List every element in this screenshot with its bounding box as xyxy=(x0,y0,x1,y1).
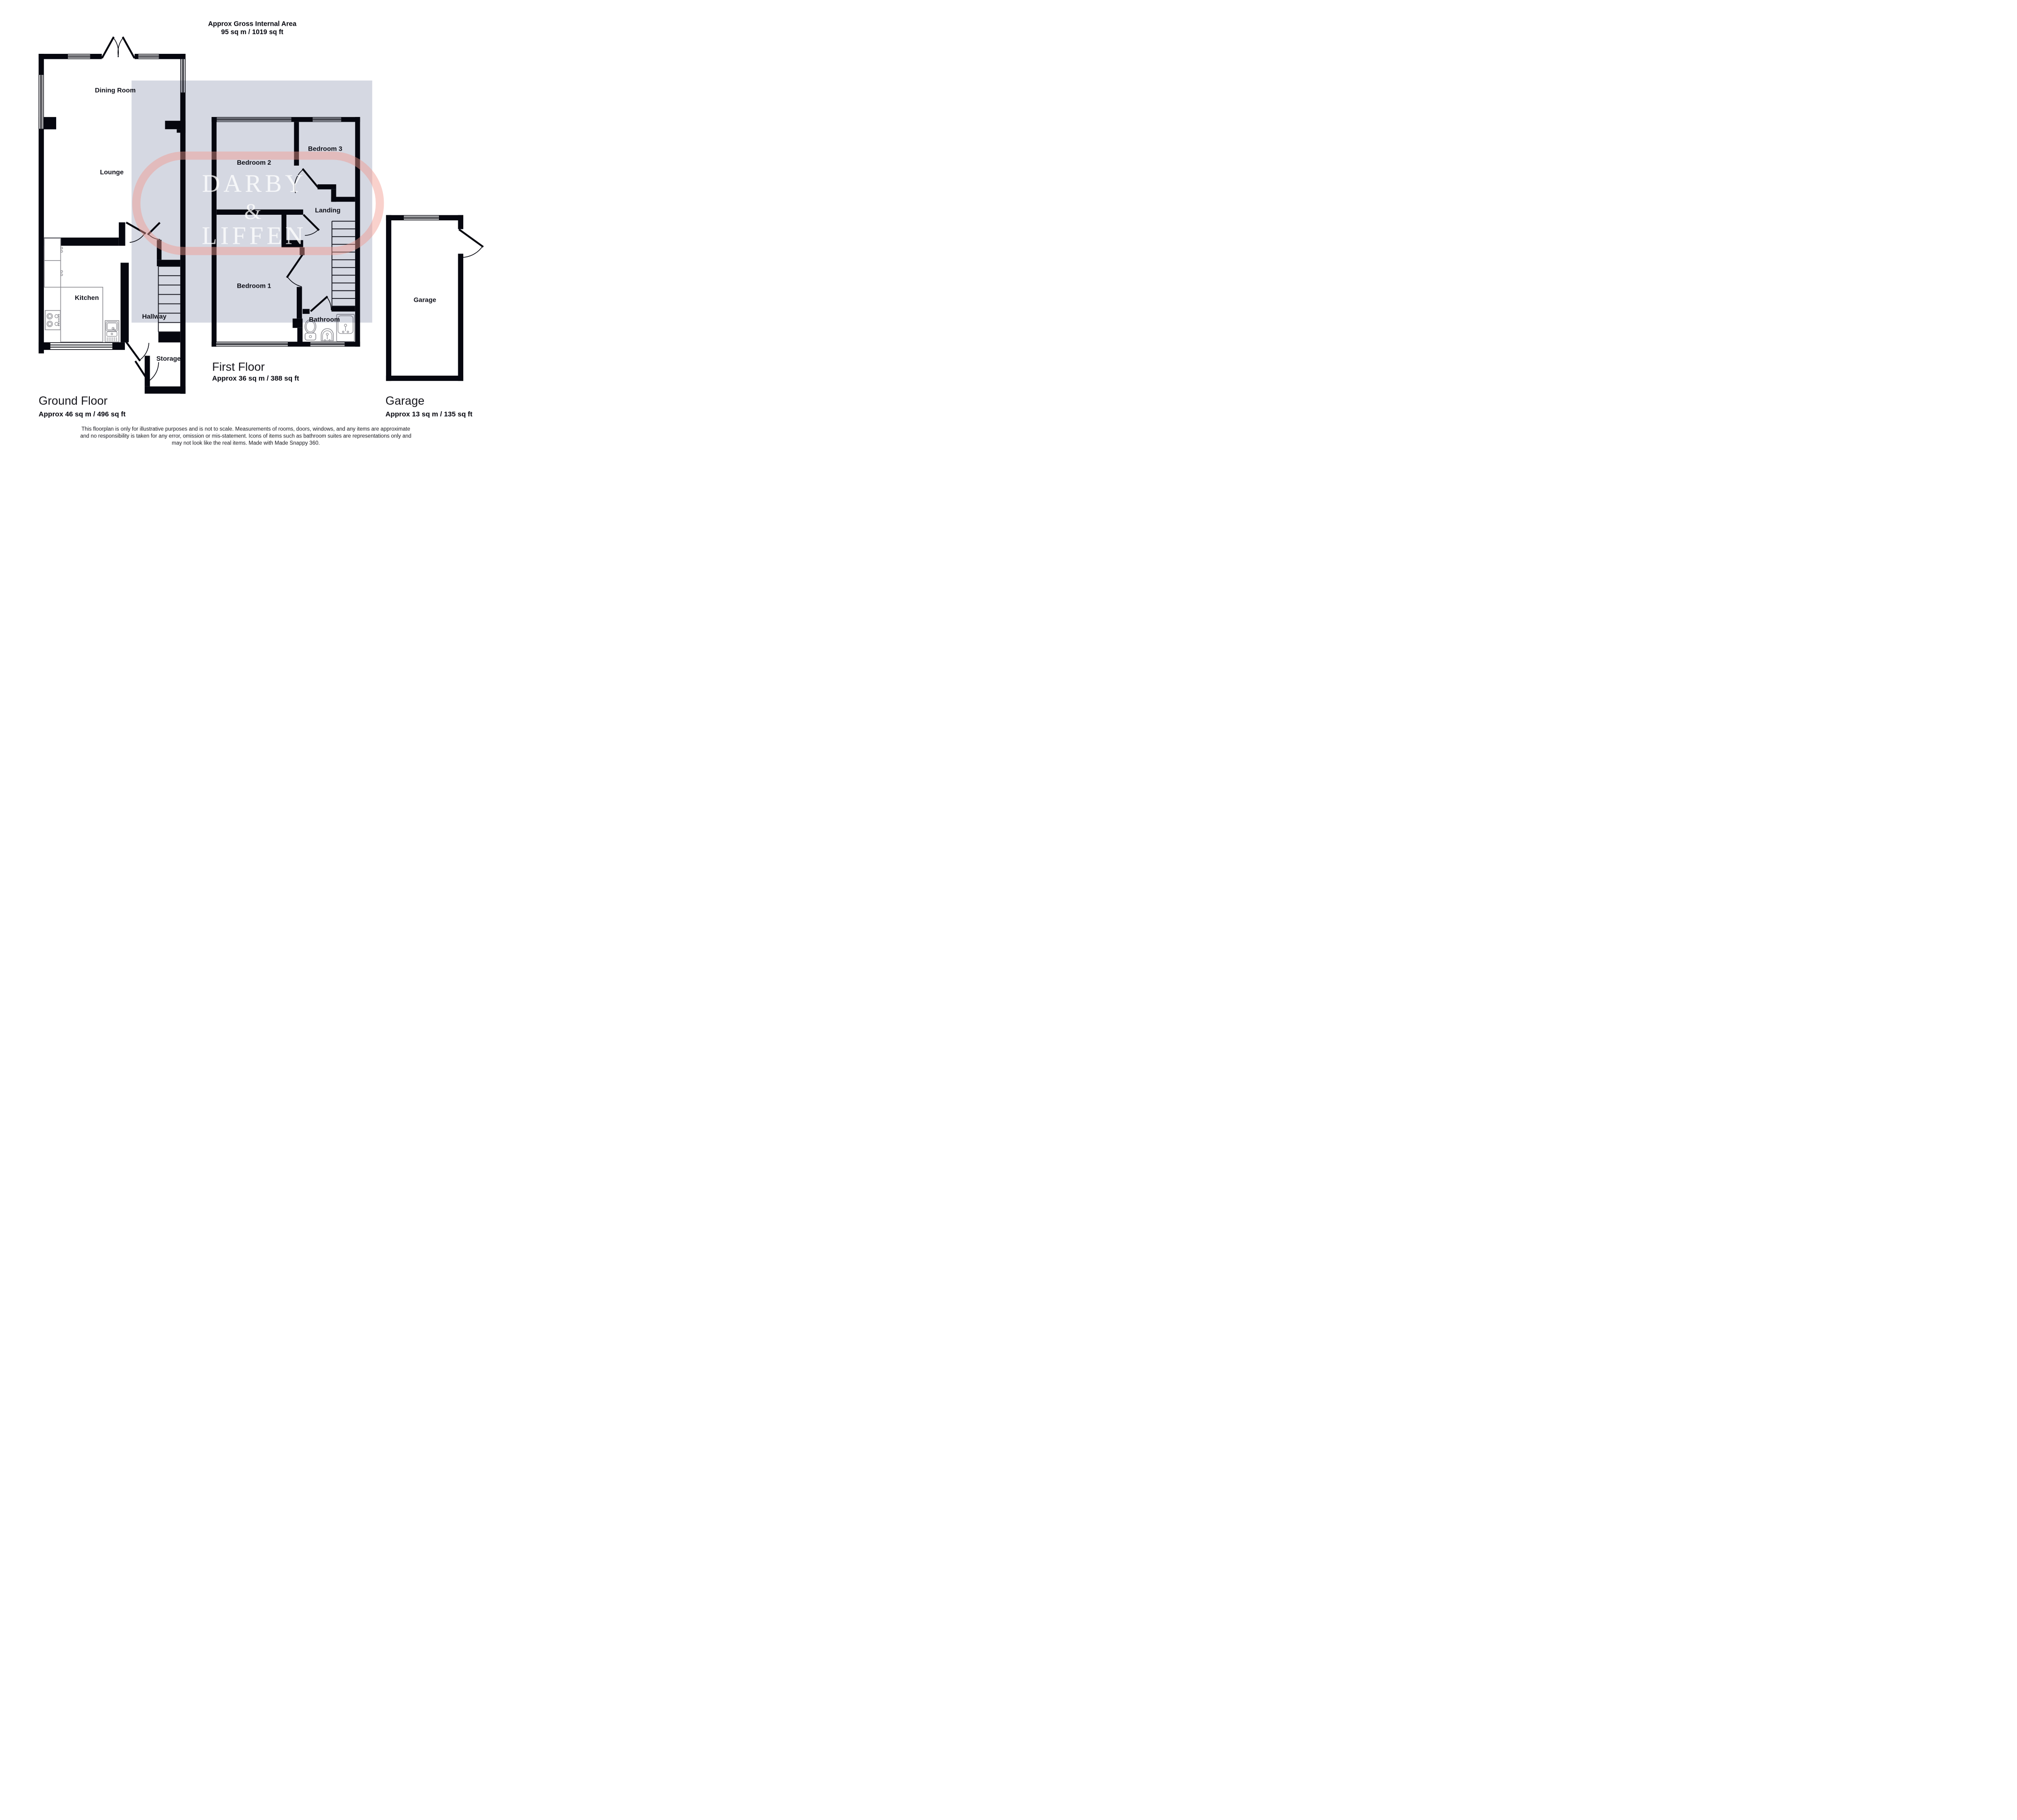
watermark-word-liffen: LIFFEN xyxy=(202,222,307,250)
french-doors-icon xyxy=(102,38,134,58)
floorplan-canvas: Approx Gross Internal Area 95 sq m / 101… xyxy=(0,0,504,455)
garage-door-icon xyxy=(460,230,482,258)
hob-icon xyxy=(45,311,61,330)
watermark-word-darby: DARBY xyxy=(202,169,307,197)
garage-title: Garage xyxy=(386,394,424,408)
gross-internal-area-title: Approx Gross Internal Area xyxy=(208,21,297,28)
first-floor-area: Approx 36 sq m / 388 sq ft xyxy=(212,374,299,382)
ground-floor-area: Approx 46 sq m / 496 sq ft xyxy=(39,410,126,418)
garage-area: Approx 13 sq m / 135 sq ft xyxy=(386,410,473,418)
disclaimer-line-2: and no responsibility is taken for any e… xyxy=(80,433,411,439)
floorplan-page: Approx Gross Internal Area 95 sq m / 101… xyxy=(0,0,504,455)
first-floor-title: First Floor xyxy=(212,360,264,373)
garage-plan: Garage xyxy=(386,215,482,381)
basin-icon xyxy=(321,328,333,341)
room-label-garage: Garage xyxy=(414,296,436,303)
room-label-storage: Storage xyxy=(156,355,181,362)
room-label-dining: Dining Room xyxy=(95,87,136,94)
floor-titles: First Floor Approx 36 sq m / 388 sq ft G… xyxy=(39,360,473,418)
garage-window xyxy=(404,216,439,219)
room-label-lounge: Lounge xyxy=(100,168,124,176)
gross-internal-area-value: 95 sq m / 1019 sq ft xyxy=(221,29,284,36)
sink-icon xyxy=(105,320,119,342)
disclaimer-text: This floorplan is only for illustrative … xyxy=(80,426,411,446)
watermark-ampersand: & xyxy=(244,200,262,224)
room-label-kitchen: Kitchen xyxy=(75,294,99,301)
ground-floor-title: Ground Floor xyxy=(39,394,108,408)
disclaimer-line-1: This floorplan is only for illustrative … xyxy=(81,426,410,432)
watermark: DARBY & LIFFEN xyxy=(132,80,380,322)
disclaimer-line-3: may not look like the real items. Made w… xyxy=(172,440,320,446)
